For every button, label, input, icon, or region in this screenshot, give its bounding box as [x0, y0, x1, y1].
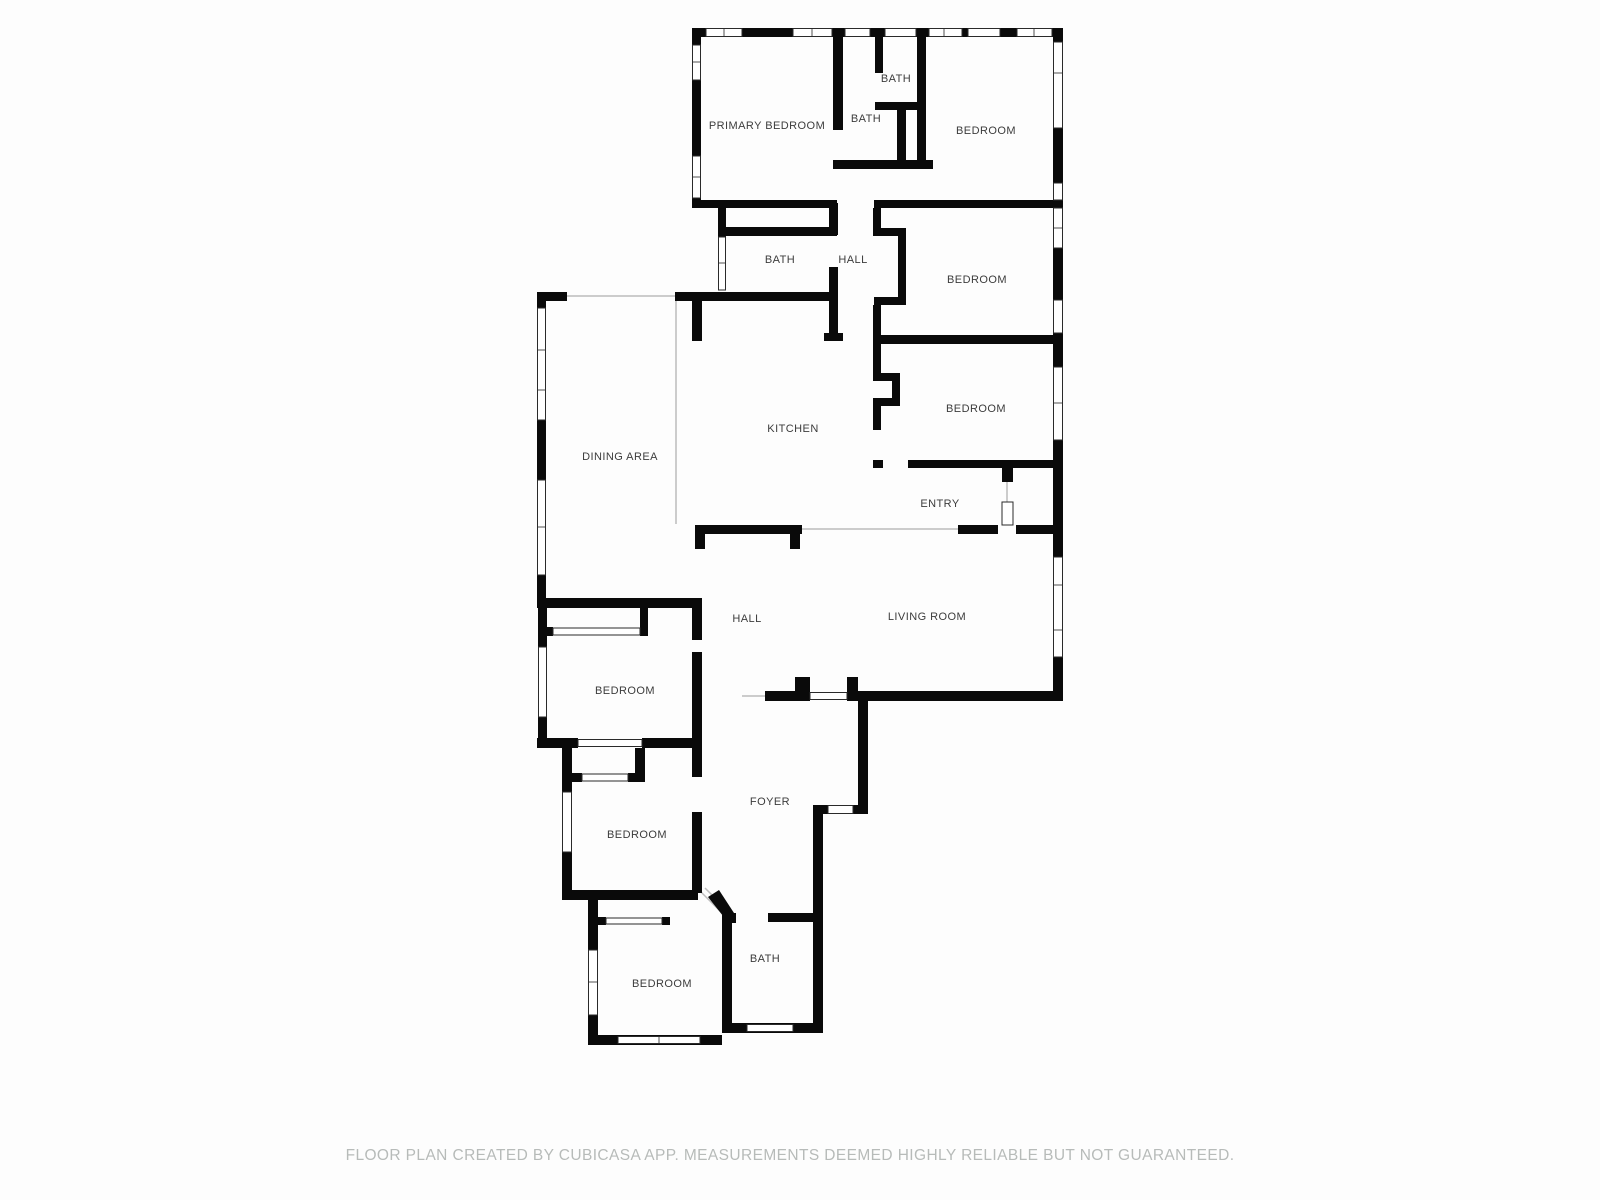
- room-label-hall-upper: HALL: [838, 254, 867, 266]
- walls-layer: [537, 28, 1063, 1045]
- room-label-hall-lower: HALL: [732, 613, 761, 625]
- footer-disclaimer: FLOOR PLAN CREATED BY CUBICASA APP. MEAS…: [0, 1147, 1580, 1165]
- room-label-bath-primary: BATH: [851, 113, 881, 125]
- room-label-bath-wc: BATH: [881, 73, 911, 85]
- room-label-entry: ENTRY: [920, 498, 959, 510]
- room-label-bedroom-6: BEDROOM: [632, 978, 692, 990]
- floor-plan: PRIMARY BEDROOMBATHBATHBEDROOMBATHHALLBE…: [0, 0, 1600, 1200]
- ceiling-break-lines: [567, 296, 1007, 696]
- room-label-bath-hall: BATH: [765, 254, 795, 266]
- room-label-bedroom-4: BEDROOM: [595, 685, 655, 697]
- room-label-foyer: FOYER: [750, 796, 790, 808]
- room-label-dining-area: DINING AREA: [582, 451, 658, 463]
- room-label-bath-lower: BATH: [750, 953, 780, 965]
- room-label-kitchen: KITCHEN: [767, 423, 818, 435]
- room-label-primary-bedroom: PRIMARY BEDROOM: [709, 120, 825, 132]
- room-label-bedroom-1: BEDROOM: [956, 125, 1016, 137]
- floor-plan-drawing: [0, 0, 1600, 1200]
- room-label-bedroom-5: BEDROOM: [607, 829, 667, 841]
- room-label-bedroom-3: BEDROOM: [946, 403, 1006, 415]
- room-label-living-room: LIVING ROOM: [888, 611, 966, 623]
- room-label-bedroom-2: BEDROOM: [947, 274, 1007, 286]
